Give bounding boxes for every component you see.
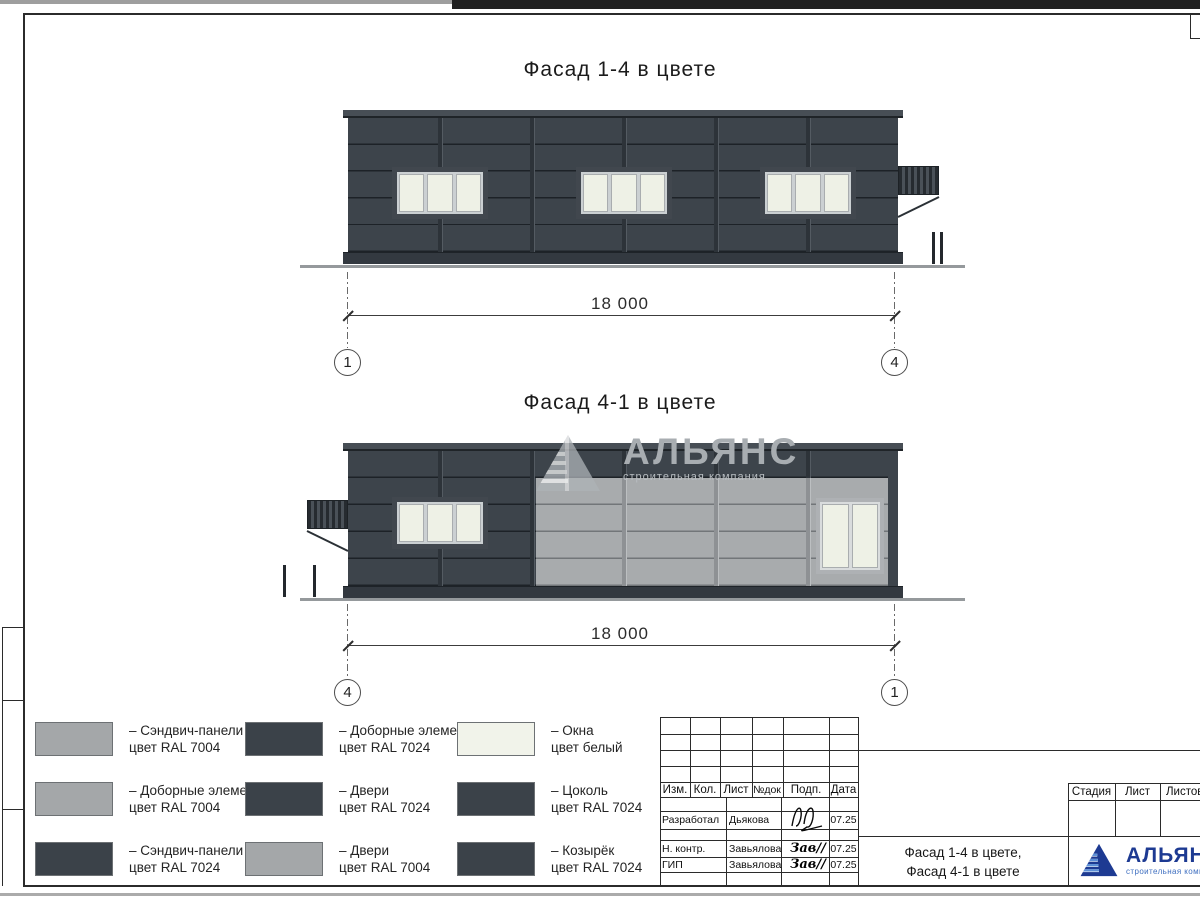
person-name: Завьялова (729, 843, 781, 855)
dimension-line (348, 315, 895, 316)
extension-line (894, 272, 895, 348)
titleblock-line (726, 797, 727, 887)
extension-line (347, 604, 348, 678)
legend-swatch (457, 782, 535, 816)
company-logo: АЛЬЯНС строительная компания (1080, 843, 1200, 877)
legend-swatch (245, 842, 323, 876)
grid-axis-bubble: 4 (881, 349, 908, 376)
legend-swatch (245, 782, 323, 816)
facade-1-4-title: Фасад 1-4 в цвете (340, 58, 900, 82)
extension-line (347, 272, 348, 348)
window-2pane (816, 498, 884, 574)
rev-header-list: Лист (720, 784, 752, 796)
window-3pane (392, 167, 488, 219)
plinth (343, 252, 903, 264)
panel-seam (714, 118, 719, 252)
ground-line (300, 265, 965, 268)
corner-box-line (1190, 38, 1200, 39)
panel-seam (530, 118, 535, 252)
legend-item: – Доборные элементыцвет RAL 7004 (35, 782, 270, 816)
panel-seam (714, 451, 719, 478)
signature-icon: Зав∕∕ (790, 841, 826, 856)
signature-icon (786, 800, 828, 834)
titleblock-line (858, 750, 1200, 751)
stage-header: Лист (1115, 786, 1160, 798)
legend-swatch (457, 842, 535, 876)
legend-swatch (35, 782, 113, 816)
corner-box-line (1190, 15, 1191, 38)
titleblock-line (781, 797, 782, 887)
filing-margin-line (2, 627, 3, 886)
person-date: 07.25 (829, 859, 858, 871)
downpipe (283, 565, 286, 597)
panel-seam (622, 478, 627, 586)
window-3pane (392, 497, 488, 549)
legend-item: – Сэндвич-панелицвет RAL 7024 (35, 842, 243, 876)
dimension-value: 18 000 (570, 624, 670, 644)
person-date: 07.25 (829, 843, 858, 855)
titleblock-line (1068, 783, 1069, 887)
rev-header-data: Дата (829, 784, 858, 796)
legend-swatch (245, 722, 323, 756)
titleblock-line (1068, 783, 1200, 784)
canopy-strut (304, 529, 350, 555)
grid-axis-bubble: 1 (881, 679, 908, 706)
canopy-icon (307, 500, 348, 529)
dimension-value: 18 000 (570, 294, 670, 314)
legend-swatch (457, 722, 535, 756)
legend-item: – Дверицвет RAL 7004 (245, 842, 430, 876)
bottom-edge-strip (0, 893, 1200, 896)
person-name: Завьялова (729, 859, 781, 871)
top-dark-bar (452, 0, 1200, 9)
titleblock-line (858, 836, 1200, 837)
parapet-cap (343, 110, 903, 118)
downpipe (940, 232, 943, 264)
legend-item: – Дверицвет RAL 7024 (245, 782, 430, 816)
facade-4-1-title: Фасад 4-1 в цвете (340, 391, 900, 415)
extension-line (894, 604, 895, 678)
logo-title: АЛЬЯНС (1126, 845, 1200, 866)
person-role: ГИП (662, 859, 683, 871)
panel-seam (806, 478, 811, 586)
person-date: 07.25 (829, 814, 858, 826)
titleblock-line (1160, 783, 1161, 836)
legend-item: – Доборные элементыцвет RAL 7024 (245, 722, 480, 756)
canopy-icon (898, 166, 939, 195)
filing-margin-line (2, 627, 23, 628)
panel-seam (530, 451, 535, 586)
grid-axis-bubble: 1 (334, 349, 361, 376)
window-3pane (576, 167, 672, 219)
person-role: Разработал (662, 814, 719, 826)
ground-line (300, 598, 965, 601)
logo-subtitle: строительная компания (1126, 867, 1200, 876)
person-role: Н. контр. (662, 843, 705, 855)
filing-margin-line (2, 809, 23, 810)
legend-item: – Козырёкцвет RAL 7024 (457, 842, 642, 876)
rev-header-izm: Изм. (660, 784, 690, 796)
legend-item: – Цокольцвет RAL 7024 (457, 782, 642, 816)
filing-margin-line (2, 700, 23, 701)
facade-1-4-drawing (348, 110, 898, 267)
downpipe (932, 232, 935, 264)
drawing-sheet: Фасад 1-4 в цвете 18 000 1 4 Фас (0, 0, 1200, 900)
stage-header: Стадия (1068, 786, 1115, 798)
pyramid-logo-icon (1080, 843, 1118, 877)
rev-header-ndok: №док (750, 784, 784, 796)
downpipe (313, 565, 316, 597)
signature-icon: Зав∕∕ (790, 857, 826, 872)
legend-item: – Сэндвич-панелицвет RAL 7004 (35, 722, 243, 756)
legend-swatch (35, 722, 113, 756)
grid-axis-bubble: 4 (334, 679, 361, 706)
parapet-cap (343, 443, 903, 451)
legend-item: – Окнацвет белый (457, 722, 623, 756)
corner-trim (888, 451, 898, 586)
panel-seam (714, 478, 719, 586)
stage-header: Листов (1166, 786, 1200, 798)
rev-header-kol: Кол. (690, 784, 720, 796)
titleblock-line (1068, 800, 1200, 801)
plinth (343, 586, 903, 598)
doc-title: Фасад 1-4 в цвете, Фасад 4-1 в цвете (858, 843, 1068, 881)
panel-seam (622, 451, 627, 478)
canopy-strut (896, 195, 942, 221)
panel-seam (806, 451, 811, 478)
person-name: Дьякова (729, 814, 769, 826)
rev-header-podp: Подп. (783, 784, 829, 796)
dimension-line (348, 645, 895, 646)
window-3pane (760, 167, 856, 219)
facade-4-1-drawing (348, 443, 898, 600)
legend-swatch (35, 842, 113, 876)
